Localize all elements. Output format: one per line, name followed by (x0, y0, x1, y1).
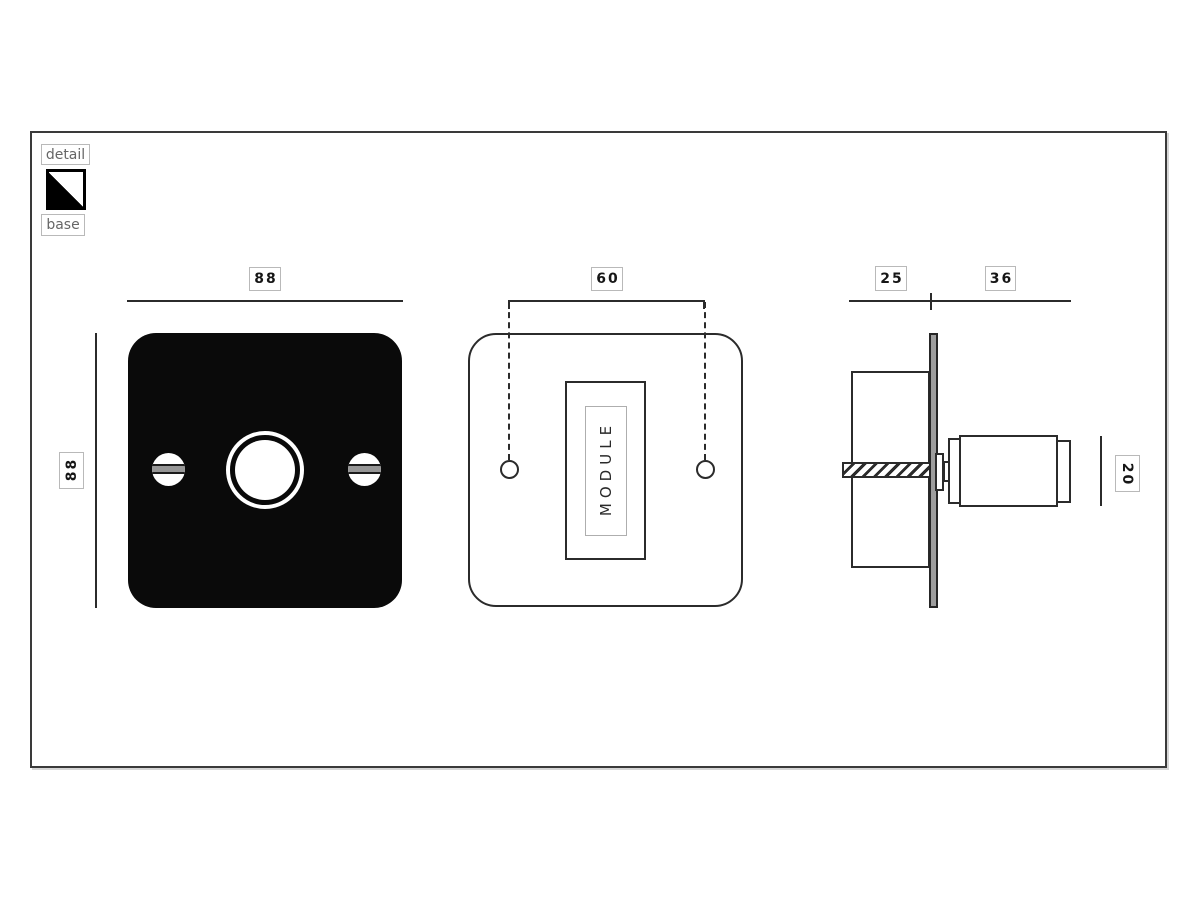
dim-knob-line (1100, 436, 1102, 506)
screw-left-icon (152, 453, 185, 486)
screw-hole-left (500, 460, 519, 479)
projection-line-right (704, 302, 706, 460)
technical-drawing-canvas: detail base 88 88 60 MODULE 25 36 20 (0, 0, 1200, 900)
module-cutout: MODULE (565, 381, 646, 560)
screw-slot (348, 464, 381, 474)
legend-detail-label: detail (41, 144, 90, 165)
threaded-rod-icon (842, 462, 931, 478)
screw-slot (152, 464, 185, 474)
dim-height-label: 88 (59, 452, 84, 489)
finish-swatch-icon (46, 169, 86, 210)
dimmer-knob (226, 431, 304, 509)
projection-line-left (508, 302, 510, 460)
module-label: MODULE (585, 406, 627, 536)
side-dim-line (849, 300, 1071, 302)
dim-width-label: 88 (249, 267, 281, 291)
dimmer-knob-center (235, 440, 295, 500)
dim-recess-depth-label: 25 (875, 266, 907, 291)
dim-width-line (127, 300, 403, 302)
side-dim-tick (930, 293, 932, 310)
screw-hole-right (696, 460, 715, 479)
dim-knob-label: 20 (1115, 455, 1140, 492)
knob-body-side (959, 435, 1058, 507)
dim-hole-spacing-label: 60 (591, 267, 623, 291)
knob-front-cap (1056, 440, 1071, 503)
dim-height-line (95, 333, 97, 608)
dim-hole-spacing-line (508, 300, 705, 302)
dim-projection-label: 36 (985, 266, 1016, 291)
legend-base-label: base (41, 214, 85, 236)
screw-right-icon (348, 453, 381, 486)
